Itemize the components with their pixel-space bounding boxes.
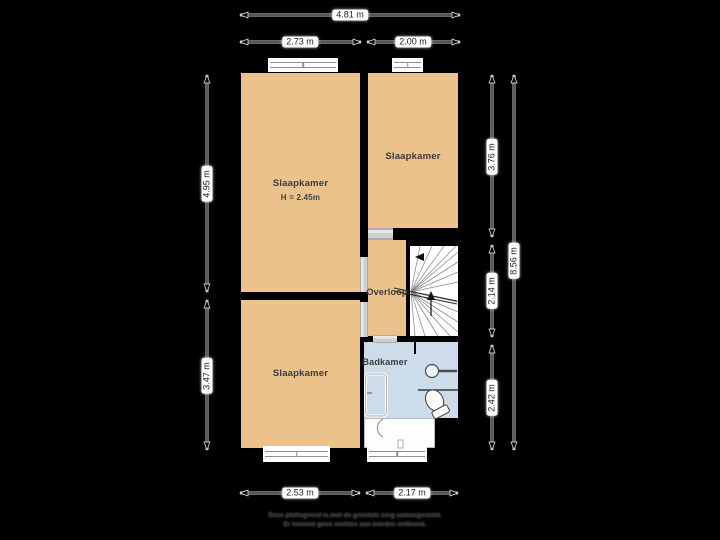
dim-top-total: 4.81 m	[332, 10, 368, 21]
dim-right-middle: 2.14 m	[487, 273, 498, 309]
dim-left-lower: 3.47 m	[202, 358, 213, 394]
dim-bottom-right: 2.17 m	[394, 488, 430, 499]
dim-right-total: 8.56 m	[509, 243, 520, 279]
window-symbol	[263, 446, 330, 462]
room-label-bedroom-right: Slaapkamer	[368, 151, 458, 162]
disclaimer: Deze plattegrond is met de grootste zorg…	[268, 511, 441, 529]
floorplan-viewer: Slaapkamer H = 2.45m Slaapkamer Slaapkam…	[0, 0, 720, 540]
door-symbol	[373, 335, 397, 343]
disclaimer-line2: Er kunnen geen rechten aan worden ontlee…	[268, 520, 441, 529]
door-symbol	[360, 302, 368, 337]
door-symbol	[368, 228, 393, 240]
dormer-recess-area	[364, 418, 435, 448]
window-symbol	[392, 58, 423, 72]
room-label-bathroom: Badkamer	[356, 357, 414, 368]
stairwell-area	[410, 246, 458, 336]
dim-top-right: 2.00 m	[395, 37, 431, 48]
dim-bottom-left: 2.53 m	[282, 488, 318, 499]
dim-right-lower: 2.42 m	[487, 380, 498, 416]
dim-right-upper: 3.76 m	[487, 139, 498, 175]
floorplan: Slaapkamer H = 2.45m Slaapkamer Slaapkam…	[228, 56, 470, 464]
room-label-bedroom-left: Slaapkamer H = 2.45m	[241, 178, 360, 203]
disclaimer-line1: Deze plattegrond is met de grootste zorg…	[268, 511, 441, 520]
room-label-landing: Overloop	[361, 287, 413, 298]
room-bathroom	[364, 342, 458, 418]
window-symbol	[268, 58, 338, 72]
window-symbol	[367, 446, 427, 462]
room-label-bedroom-bottom: Slaapkamer	[241, 368, 360, 379]
dim-left-upper: 4.95 m	[202, 166, 213, 202]
ceiling-height-note: H = 2.45m	[241, 192, 360, 203]
dim-top-left: 2.73 m	[282, 37, 318, 48]
